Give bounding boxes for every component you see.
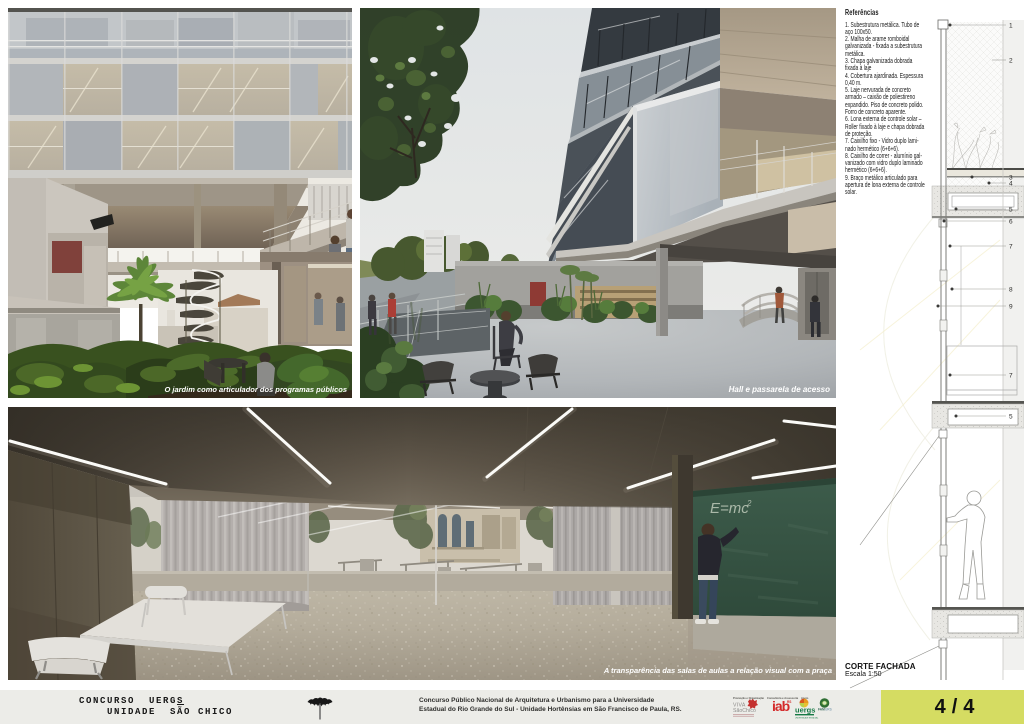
svg-text:Promoção e Organização: Promoção e Organização [733, 696, 765, 700]
svg-text:SãoChⅠco: SãoChⅠco [733, 708, 756, 714]
svg-text:5: 5 [1009, 414, 1013, 421]
svg-text:1: 1 [1009, 23, 1013, 30]
svg-text:9: 9 [1009, 304, 1013, 311]
svg-text:FAM: FAM [818, 708, 825, 712]
svg-text:6: 6 [1009, 219, 1013, 226]
svg-text:8: 8 [1009, 287, 1013, 294]
svg-text:4: 4 [1009, 181, 1013, 188]
svg-text:7: 7 [1009, 244, 1013, 251]
svg-text:RS: RS [787, 700, 791, 704]
svg-text:2: 2 [746, 499, 752, 508]
svg-text:5: 5 [1009, 207, 1013, 214]
svg-text:2: 2 [1009, 58, 1013, 65]
svg-text:UNIVERSIDADE ESTADUAL: UNIVERSIDADE ESTADUAL [795, 717, 818, 720]
svg-text:uergs: uergs [795, 706, 815, 715]
svg-text:E=mc: E=mc [710, 500, 749, 517]
svg-text:7: 7 [1009, 373, 1013, 380]
svg-text:URS: URS [825, 708, 832, 712]
